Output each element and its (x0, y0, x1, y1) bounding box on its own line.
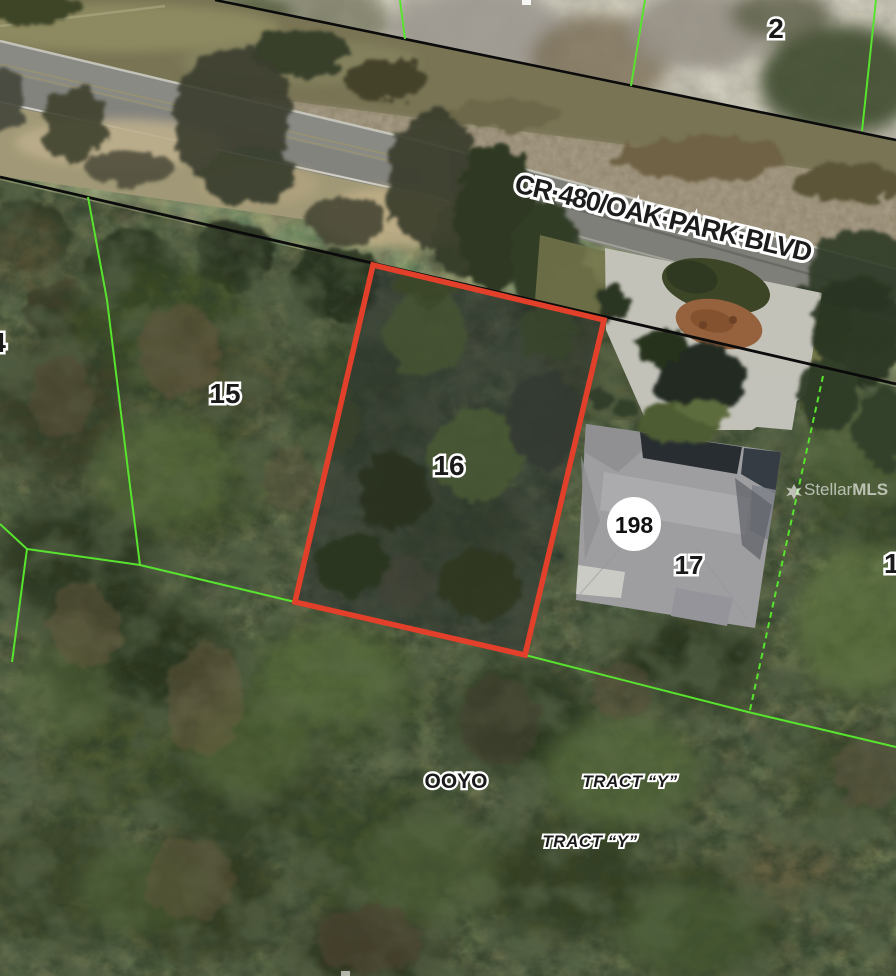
svg-text:2: 2 (768, 13, 784, 44)
svg-text:15: 15 (209, 378, 240, 409)
svg-text:OOYO: OOYO (424, 770, 487, 793)
svg-text:17: 17 (675, 550, 704, 580)
svg-text:198: 198 (615, 512, 654, 538)
svg-text:StellarMLS: StellarMLS (804, 480, 888, 499)
svg-text:TRACT “Y”: TRACT “Y” (582, 772, 677, 791)
svg-text:4: 4 (0, 327, 6, 358)
svg-text:TRACT “Y”: TRACT “Y” (542, 832, 637, 851)
svg-text:18: 18 (884, 548, 896, 579)
svg-text:16: 16 (433, 450, 464, 481)
